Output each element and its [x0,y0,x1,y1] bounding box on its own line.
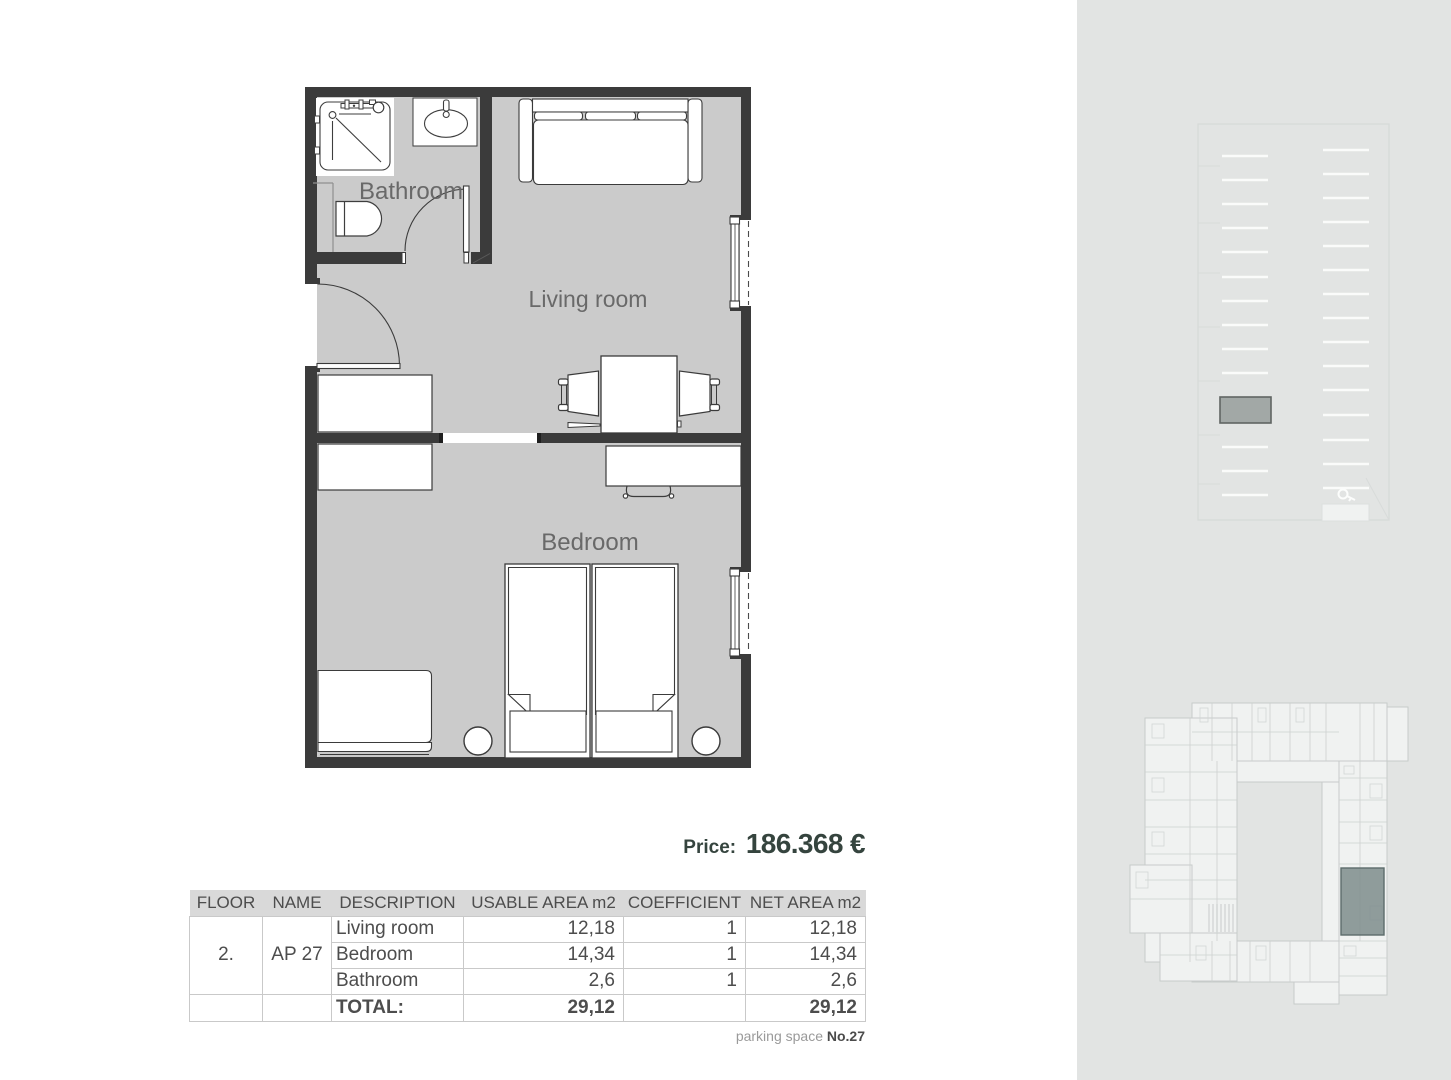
svg-text:Bathroom: Bathroom [359,178,463,205]
svg-text:Bedroom: Bedroom [541,529,638,556]
svg-text:Living room: Living room [529,286,648,312]
